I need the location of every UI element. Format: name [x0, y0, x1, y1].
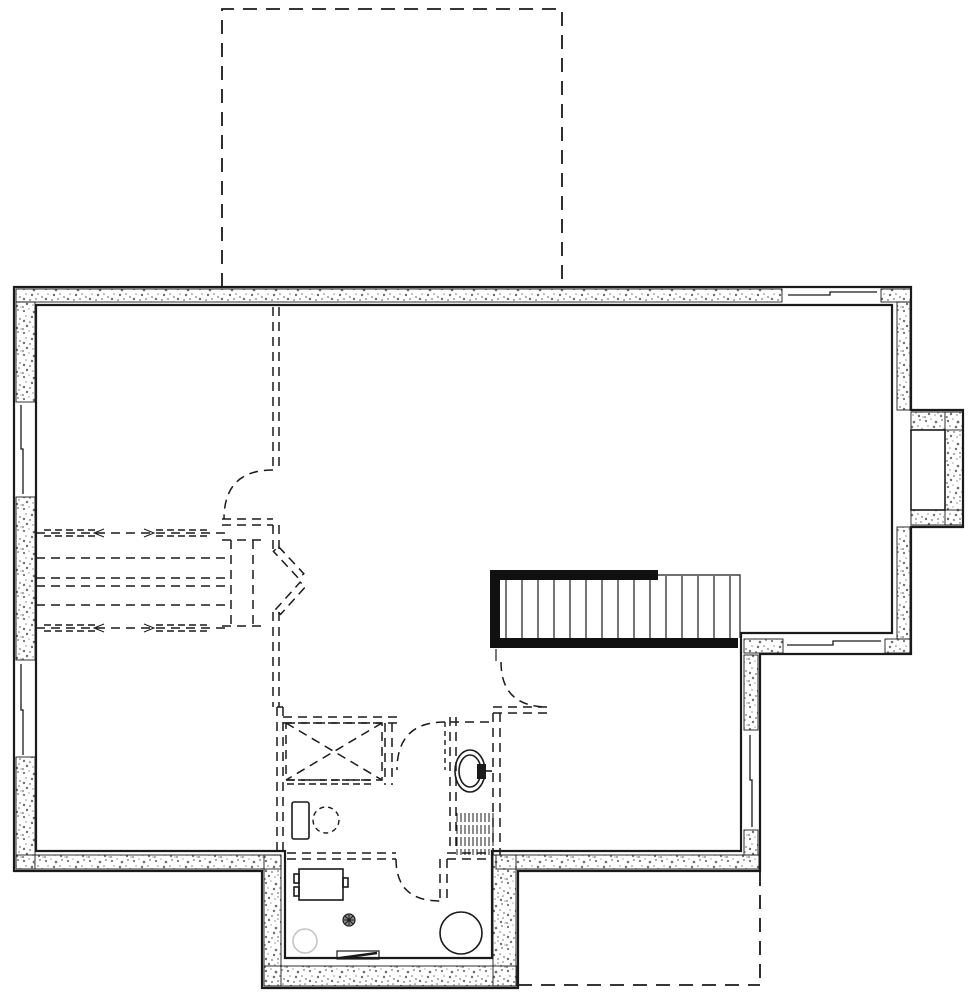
wall-bottom-left [16, 855, 281, 869]
foundation-outer-boundary [14, 287, 963, 988]
stair-stringer-bottom [490, 638, 738, 648]
wall-right-lower-block-b [744, 830, 758, 855]
window-top-wall [788, 292, 877, 295]
window-right-step-wall [787, 641, 881, 645]
shower-rough-in-x [286, 723, 382, 780]
mech-room-top-wall-left [287, 853, 396, 859]
wc-room-right-wall [493, 707, 548, 855]
window-left-wall-upper [21, 405, 23, 494]
chimney-bump-cleanout [911, 430, 945, 510]
wall-right-upper-block-a [897, 302, 910, 410]
wall-left-block-b [16, 497, 35, 660]
furnace-tab-right [343, 878, 348, 887]
wall-step-block-b [885, 639, 910, 653]
furnace-tab-left-2 [294, 887, 299, 896]
duct-chase [222, 540, 263, 626]
furnace-body [299, 869, 343, 900]
staircase [490, 570, 740, 707]
washer-rough-in [313, 807, 339, 833]
laundry-fixtures [292, 802, 339, 839]
furnace [294, 869, 348, 900]
stair-stringer-top [490, 570, 658, 580]
water-heater [440, 912, 482, 954]
upper-floor-dashed-lines [222, 9, 562, 287]
partition-vertical-from-top-wall [273, 307, 279, 468]
wall-step-block-a [744, 639, 783, 653]
floor-plan-canvas [0, 0, 979, 1000]
wall-right-lower-block-a [744, 655, 758, 730]
bath-door-swing-arc [397, 722, 445, 770]
window-right-side-wall [750, 735, 752, 827]
patio-dashed-lines [518, 872, 760, 985]
floor-drain-grid [344, 915, 354, 925]
stair-door-swing-arc [501, 662, 548, 707]
patio-footprint-outline [518, 872, 760, 985]
chimney-bump-bottom [911, 510, 963, 525]
wall-top-right-block [881, 289, 911, 302]
bath-area-left-wall [277, 707, 283, 853]
furnace-tab-left-1 [294, 874, 299, 883]
wall-protrusion-bottom [264, 966, 517, 986]
upper-floor-footprint-outline [222, 9, 562, 287]
stair-stringer-left [490, 570, 500, 648]
wc-room-left-wall [450, 717, 493, 849]
basement-floor-plan [0, 0, 979, 1000]
mechanical-fixtures [293, 869, 482, 959]
vanity-hatch-rows [457, 813, 493, 855]
wall-top-left-block [16, 289, 782, 302]
stair-lower-run-outline [658, 575, 740, 638]
duct-runs [36, 529, 228, 632]
mechanical-room-partitions [287, 853, 490, 901]
shower-room-right-wall [385, 723, 392, 785]
window-left-wall-lower [21, 664, 23, 755]
mech-room-door-swing-arc [396, 859, 440, 901]
wall-protrusion-right [493, 855, 516, 986]
foundation-walls [14, 287, 963, 988]
future-bath-laundry [277, 707, 548, 855]
floor-drain [343, 914, 355, 926]
closet-top-wall [222, 519, 273, 525]
shower-room-top-wall [283, 717, 397, 723]
wall-right-upper-block-b [897, 527, 910, 639]
wall-bottom-right [496, 855, 759, 869]
mech-room-door-jamb [440, 859, 447, 898]
double-door-panel-upper [273, 547, 303, 579]
foundation-windows [21, 292, 881, 827]
double-door-panel-lower [275, 582, 305, 614]
stair-treads [506, 576, 730, 638]
toilet-tank [477, 764, 486, 779]
wall-left-block-c [16, 757, 35, 869]
laundry-tub [292, 802, 309, 839]
sump-pit [293, 929, 317, 953]
toilet-rough-in [455, 750, 492, 792]
wall-left-block-a [16, 302, 35, 402]
door-swing-arc-hall [224, 470, 273, 519]
future-partitions-upper [222, 307, 305, 707]
chimney-bump-right [945, 412, 963, 525]
